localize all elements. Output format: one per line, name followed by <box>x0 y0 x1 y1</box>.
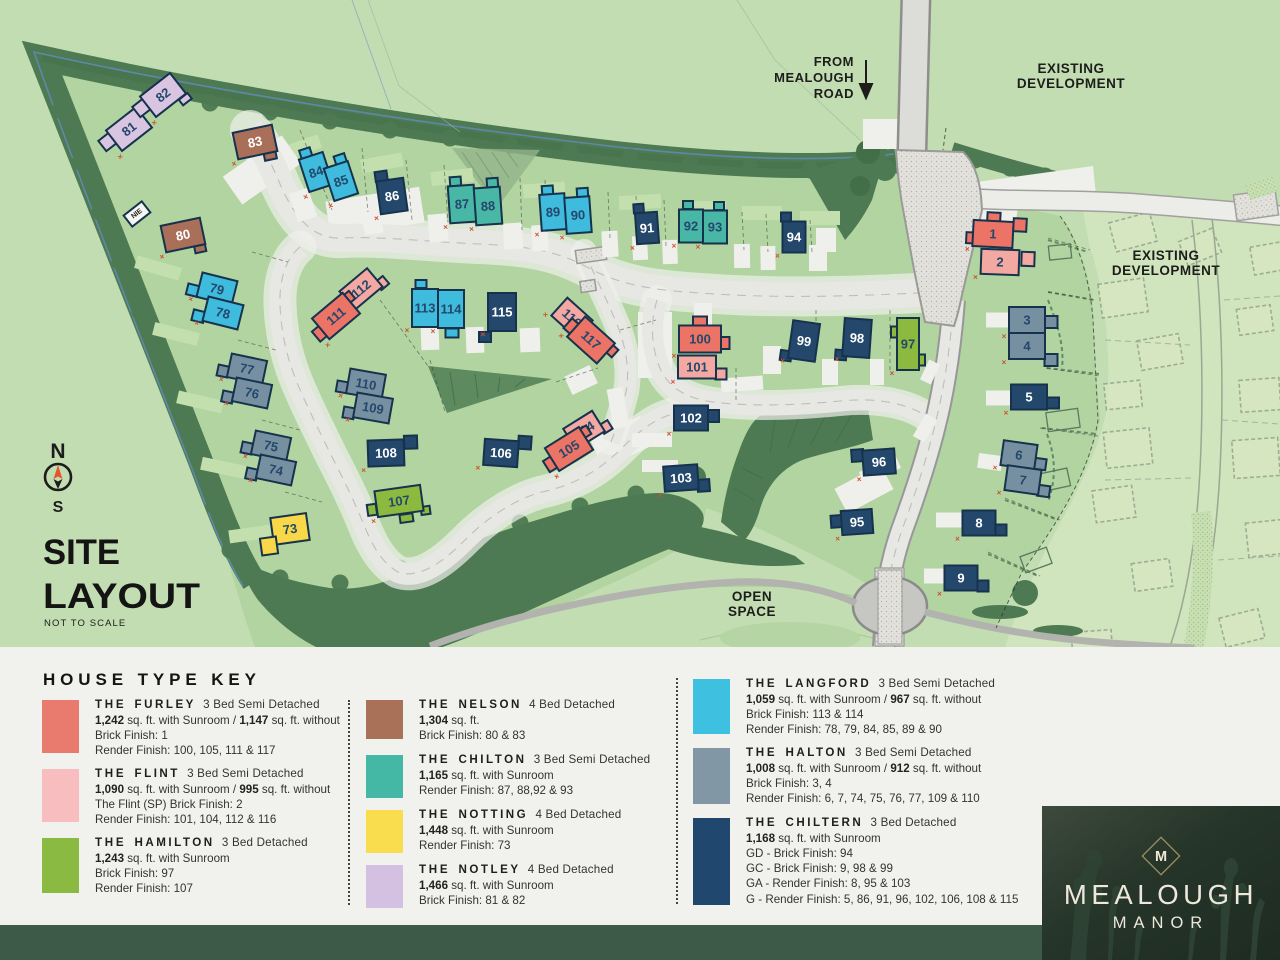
svg-text:75: 75 <box>262 437 279 455</box>
svg-text:89: 89 <box>545 204 560 220</box>
svg-text:MEALOUGH: MEALOUGH <box>1064 879 1258 910</box>
svg-text:M: M <box>1155 849 1167 865</box>
svg-text:102: 102 <box>680 411 702 426</box>
svg-text:9: 9 <box>957 571 964 586</box>
svg-text:×: × <box>1004 409 1009 418</box>
svg-text:NOT TO SCALE: NOT TO SCALE <box>44 618 126 629</box>
svg-text:90: 90 <box>570 207 585 223</box>
svg-text:SITE: SITE <box>43 533 120 572</box>
svg-text:×: × <box>405 326 410 335</box>
svg-text:101: 101 <box>686 360 708 375</box>
svg-text:×: × <box>696 243 701 252</box>
svg-text:76: 76 <box>243 384 260 402</box>
svg-text:99: 99 <box>796 333 812 350</box>
svg-text:×: × <box>361 466 366 475</box>
svg-text:MANOR: MANOR <box>1113 914 1209 932</box>
svg-text:×: × <box>973 273 978 282</box>
svg-text:FROM: FROM <box>814 54 854 69</box>
svg-text:88: 88 <box>480 198 495 214</box>
svg-text:×: × <box>671 378 676 387</box>
svg-text:S: S <box>53 499 64 516</box>
svg-text:LAYOUT: LAYOUT <box>43 577 200 616</box>
svg-text:EXISTING: EXISTING <box>1037 61 1104 76</box>
svg-text:86: 86 <box>384 188 400 205</box>
svg-text:8: 8 <box>975 516 982 531</box>
svg-text:73: 73 <box>282 521 298 538</box>
svg-text:77: 77 <box>238 360 255 378</box>
svg-text:×: × <box>672 352 677 361</box>
svg-text:×: × <box>1002 358 1007 367</box>
svg-text:×: × <box>775 252 780 261</box>
svg-text:4: 4 <box>1023 339 1031 354</box>
svg-text:×: × <box>955 535 960 544</box>
svg-text:108: 108 <box>375 445 397 461</box>
svg-text:107: 107 <box>387 492 411 510</box>
svg-text:115: 115 <box>492 305 513 320</box>
svg-text:87: 87 <box>454 196 469 212</box>
svg-text:98: 98 <box>849 330 864 346</box>
svg-text:5: 5 <box>1025 390 1032 405</box>
svg-text:94: 94 <box>787 230 802 245</box>
svg-text:106: 106 <box>490 445 513 461</box>
svg-text:DEVELOPMENT: DEVELOPMENT <box>1112 263 1221 278</box>
svg-text:83: 83 <box>246 133 263 151</box>
svg-text:SPACE: SPACE <box>728 604 776 619</box>
svg-text:×: × <box>667 430 672 439</box>
svg-text:×: × <box>1002 332 1007 341</box>
svg-text:DEVELOPMENT: DEVELOPMENT <box>1017 76 1126 91</box>
svg-text:×: × <box>937 590 942 599</box>
svg-text:×: × <box>890 369 895 378</box>
svg-text:80: 80 <box>174 226 191 244</box>
svg-text:ROAD: ROAD <box>814 86 854 101</box>
svg-text:93: 93 <box>708 220 722 235</box>
svg-text:1: 1 <box>989 226 997 241</box>
svg-text:N: N <box>50 440 65 463</box>
svg-text:3: 3 <box>1023 313 1030 328</box>
svg-text:96: 96 <box>871 454 886 470</box>
svg-text:×: × <box>672 242 677 251</box>
svg-text:OPEN: OPEN <box>732 589 772 604</box>
svg-text:97: 97 <box>901 337 915 352</box>
svg-text:114: 114 <box>441 302 463 317</box>
svg-text:MEALOUGH: MEALOUGH <box>774 70 854 85</box>
svg-text:92: 92 <box>684 219 698 234</box>
svg-text:113: 113 <box>415 301 436 316</box>
svg-text:100: 100 <box>689 332 711 347</box>
svg-text:×: × <box>481 330 486 339</box>
svg-text:103: 103 <box>670 470 693 486</box>
svg-text:95: 95 <box>849 514 864 530</box>
svg-text:×: × <box>431 327 436 336</box>
svg-text:2: 2 <box>996 254 1004 269</box>
svg-text:EXISTING: EXISTING <box>1132 248 1199 263</box>
svg-text:×: × <box>965 245 970 254</box>
svg-text:91: 91 <box>639 220 654 236</box>
